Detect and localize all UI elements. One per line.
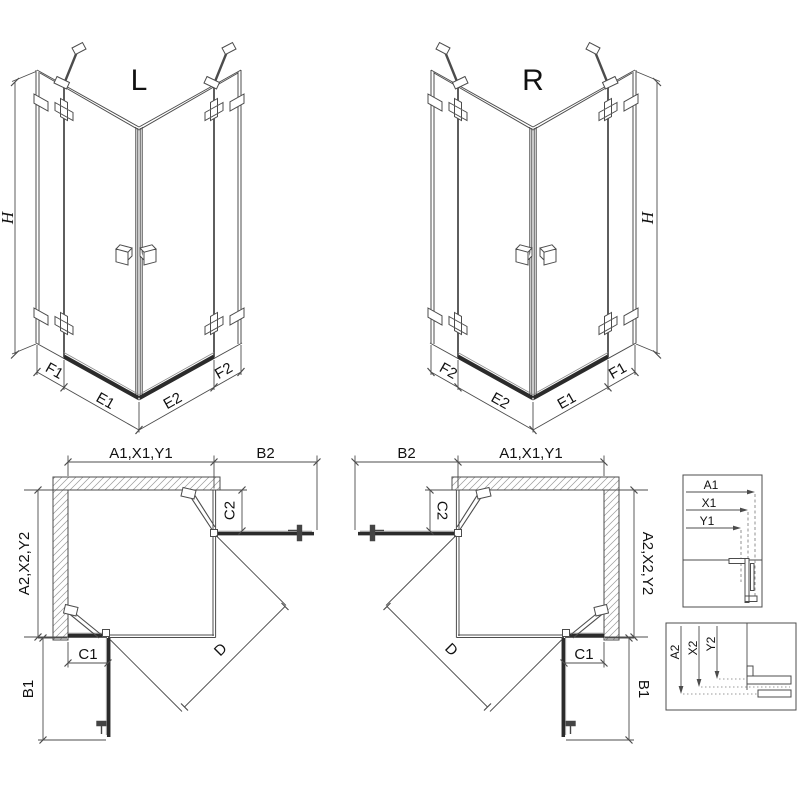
plan-left-entry-bottom-dim: B1: [20, 680, 37, 698]
technical-drawing-sheet: L R H H F1 E1 E2 F2 F2 E2 E1 F1 A1,X1,Y1…: [0, 0, 800, 800]
iso-left-title: L: [131, 64, 148, 97]
detail-width-label-y1: Y1: [700, 514, 715, 528]
iso-right-title: R: [522, 64, 544, 97]
plan-right-wall-top: [452, 477, 619, 490]
plan-view-right: [352, 456, 649, 744]
drawing-svg: L R H H F1 E1 E2 F2 F2 E2 E1 F1 A1,X1,Y1…: [0, 0, 800, 800]
plan-right-depth-dim: A2,X2,Y2: [639, 532, 656, 595]
iso-right-height-dim: H: [638, 210, 657, 225]
plan-left-fixed-bottom-dim: C1: [78, 646, 97, 663]
detail-width-label-x1: X1: [702, 496, 717, 510]
detail-depth-label-y2: Y2: [704, 636, 718, 651]
iso-left-dim-e2: E2: [161, 389, 185, 413]
iso-right-dim-f2: F2: [436, 359, 460, 382]
detail-depth-label-a2: A2: [668, 644, 682, 659]
detail-width-box: [683, 475, 762, 607]
plan-right-diagonal-dim: D: [441, 640, 461, 660]
plan-right-entry-bottom-dim: B1: [635, 680, 652, 698]
plan-right-fixed-top-dim: C2: [434, 501, 451, 520]
plan-left-wall-side: [53, 490, 68, 640]
detail-depth-box: [666, 623, 796, 710]
plan-left-diagonal-dim: D: [211, 640, 231, 660]
iso-left-height-dim: H: [0, 210, 17, 225]
plan-left-depth-dim: A2,X2,Y2: [16, 532, 33, 595]
iso-right-dim-e2: E2: [488, 389, 512, 413]
plan-left-width-dim: A1,X1,Y1: [109, 445, 172, 462]
iso-left-dim-f2: F2: [212, 359, 236, 382]
plan-view-left: [24, 456, 321, 744]
iso-left-dim-e1: E1: [93, 389, 117, 413]
plan-left-entry-top-dim: B2: [256, 445, 274, 462]
detail-depth-label-x2: X2: [686, 640, 700, 655]
detail-width-label-a1: A1: [704, 478, 719, 492]
plan-right-fixed-bottom-dim: C1: [574, 646, 593, 663]
iso-right-dim-e1: E1: [555, 389, 579, 413]
plan-right-width-dim: A1,X1,Y1: [499, 445, 562, 462]
plan-right-entry-top-dim: B2: [397, 445, 415, 462]
iso-left-dim-f1: F1: [42, 359, 66, 382]
plan-left-wall-top: [53, 477, 220, 490]
plan-right-wall-side: [604, 490, 619, 640]
plan-left-fixed-top-dim: C2: [222, 501, 239, 520]
iso-right-dim-f1: F1: [606, 359, 630, 382]
